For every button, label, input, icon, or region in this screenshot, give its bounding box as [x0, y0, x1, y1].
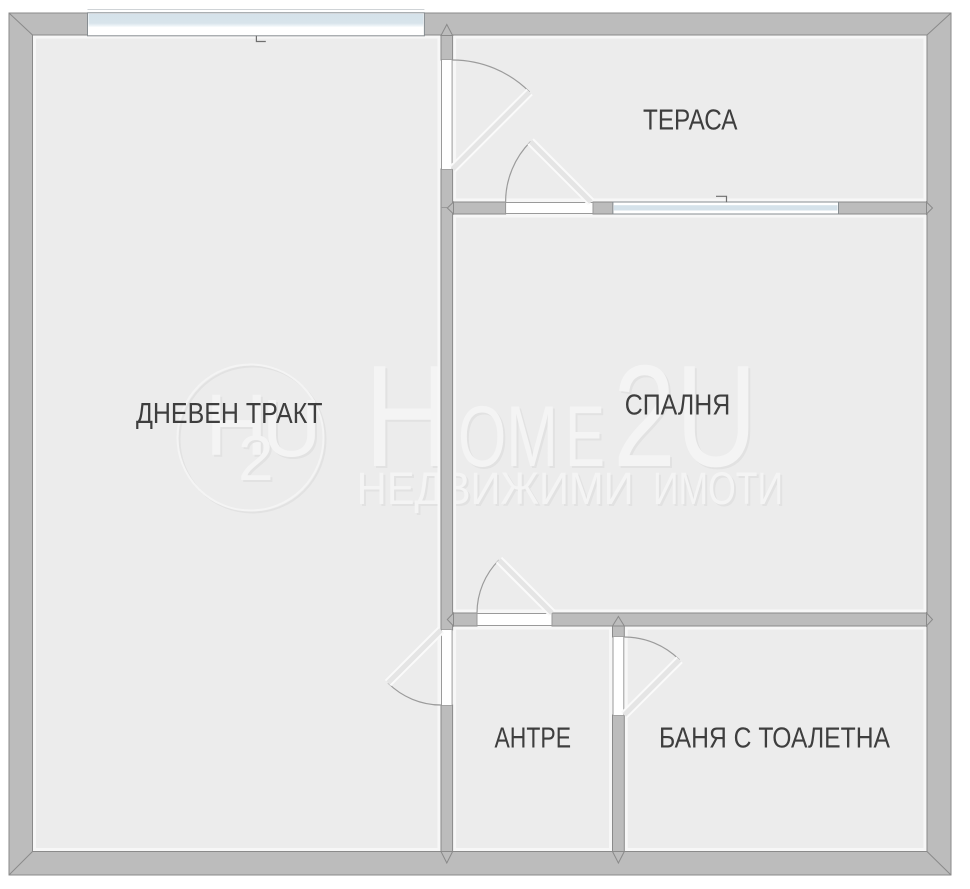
svg-text:БАНЯ С ТОАЛЕТНА: БАНЯ С ТОАЛЕТНА	[659, 723, 891, 755]
svg-text:СПАЛНЯ: СПАЛНЯ	[625, 390, 731, 422]
svg-text:ТЕРАСА: ТЕРАСА	[643, 105, 738, 137]
svg-text:НЕДВИЖИМИ: НЕДВИЖИМИ	[357, 463, 634, 514]
svg-text:ИМОТИ: ИМОТИ	[653, 463, 783, 514]
svg-text:ДНЕВЕН ТРАКТ: ДНЕВЕН ТРАКТ	[136, 398, 323, 430]
svg-text:АНТРЕ: АНТРЕ	[495, 723, 572, 755]
